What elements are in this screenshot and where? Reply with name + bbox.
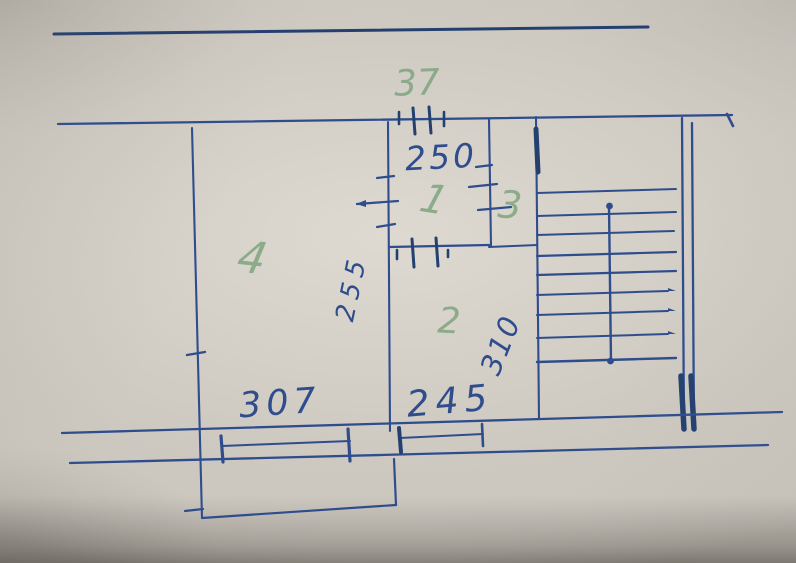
- stair-stringer-line: [609, 206, 611, 362]
- stair-tread: [537, 189, 676, 193]
- stair-tread: [537, 212, 676, 216]
- stairwell-wall-bold-mark: [536, 129, 538, 172]
- stair-tread: [537, 231, 674, 235]
- top-door-tick: [429, 107, 431, 133]
- title-underline: [54, 27, 648, 34]
- staircase: [537, 189, 676, 364]
- dim-250-label: 250: [404, 139, 478, 176]
- stair-tread: [537, 252, 676, 256]
- stair-tread: [537, 358, 676, 362]
- tread-arrow-tip: [668, 331, 676, 334]
- wall-room4-hall: [388, 122, 390, 431]
- dim-245-label: 245: [405, 380, 495, 423]
- stringer-end-dot: [607, 358, 614, 365]
- bottom-wall-lower-line: [70, 445, 768, 463]
- hall-door-tick: [412, 239, 414, 267]
- balcony: [185, 459, 396, 518]
- dim-307-label: 307: [238, 384, 322, 425]
- floor-plan-photo: 37 250 1 3 4 2 310 255 307 245: [0, 0, 796, 563]
- wall-hall-room3: [489, 119, 491, 246]
- right-wall-bold-1: [681, 376, 684, 429]
- room4-window-right-jamb: [348, 429, 350, 461]
- balcony-bottom-edge: [202, 505, 396, 518]
- balcony-right-edge: [394, 459, 396, 505]
- room2-window-right-jamb: [482, 424, 483, 446]
- stair-tread: [537, 334, 668, 338]
- top-door-tick: [413, 108, 415, 134]
- room2-window-left-jamb: [399, 428, 401, 452]
- stair-tread: [537, 271, 676, 275]
- room2-window-sill: [400, 434, 483, 438]
- room3-door-dash: [469, 184, 497, 187]
- right-wall-bold-2: [691, 376, 694, 429]
- stair-tread: [537, 311, 668, 315]
- room-2-label: 2: [437, 303, 462, 340]
- room3-bottom-wall: [489, 245, 537, 247]
- room4-door-arrowhead: [356, 200, 366, 207]
- tread-arrow-tip: [668, 288, 676, 291]
- stringer-start-dot: [606, 203, 613, 210]
- hall-bottom-wall: [389, 245, 489, 247]
- left-wall-tick: [187, 352, 205, 355]
- room4-door-dash: [377, 176, 394, 178]
- hall-door-tick: [436, 238, 438, 266]
- room4-door-dash: [377, 224, 395, 227]
- stair-tread: [537, 291, 668, 295]
- room4-window-sill: [222, 441, 350, 446]
- balcony-left-tick: [185, 509, 203, 511]
- hand-drawn-sketch: 37 250 1 3 4 2 310 255 307 245: [0, 0, 796, 563]
- top-wall: [58, 115, 732, 124]
- tread-arrow-tip: [668, 308, 676, 311]
- room4-window-left-jamb: [221, 436, 223, 462]
- room-3-label: 3: [497, 185, 524, 225]
- dim-37-label: 37: [393, 65, 440, 103]
